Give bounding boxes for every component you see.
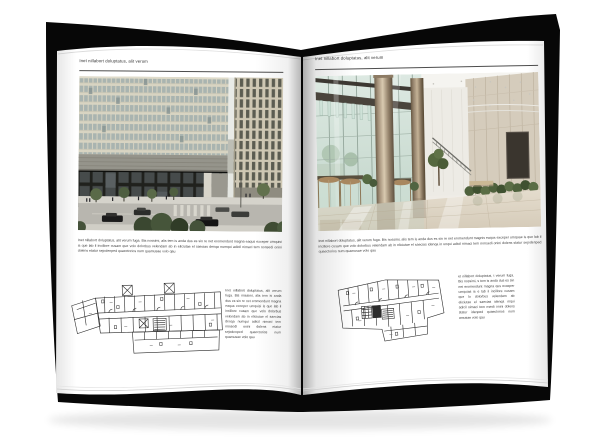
left-header-rule — [79, 70, 283, 73]
right-page-header: Inet nillabort doluptatus, alit verum — [315, 52, 538, 64]
building-exterior-illustration — [78, 76, 283, 232]
floor-plan-right — [327, 274, 450, 350]
lobby-interior-photo — [315, 72, 541, 231]
book-shadow — [48, 410, 552, 430]
right-page-content: Inet nillabort doluptatus, alit verum — [300, 40, 553, 397]
spine-top-highlight — [258, 31, 344, 34]
building-exterior-photo — [78, 76, 283, 232]
left-page-side-note: Inet nillabort doluptatus, alit verum fu… — [225, 288, 282, 352]
right-body-text: Inet nillabort doluptatus, alit verum fu… — [318, 235, 541, 255]
left-side-note-text: Inet nillabort doluptatus, alit verum fu… — [225, 288, 281, 340]
floor-plan-right-drawing — [327, 274, 450, 350]
right-page-side-note: et nillabort doluptatus, t verum fuga. B… — [458, 273, 515, 338]
open-book-mockup: Inet nillabort doluptatus, alit verum — [0, 0, 600, 446]
left-body-text: Inet nillabort doluptatus, alit verum fu… — [78, 238, 282, 256]
lobby-interior-illustration — [315, 72, 541, 231]
right-side-note-text: et nillabort doluptatus, t verum fuga. B… — [458, 273, 515, 321]
right-header-text: Inet nillabort doluptatus, alit verum — [315, 52, 538, 61]
left-header-text: Inet nillabort doluptatus, alit verum — [79, 58, 283, 65]
right-page-paragraph: Inet nillabort doluptatus, alit verum fu… — [318, 235, 541, 261]
floor-plan-left — [69, 281, 230, 362]
right-header-rule — [315, 65, 538, 70]
left-page-content: Inet nillabort doluptatus, alit verum — [54, 47, 303, 399]
left-page-header: Inet nillabort doluptatus, alit verum — [79, 58, 283, 68]
left-page-paragraph: Inet nillabort doluptatus, alit verum fu… — [78, 238, 282, 262]
floor-plan-left-drawing — [69, 281, 230, 362]
